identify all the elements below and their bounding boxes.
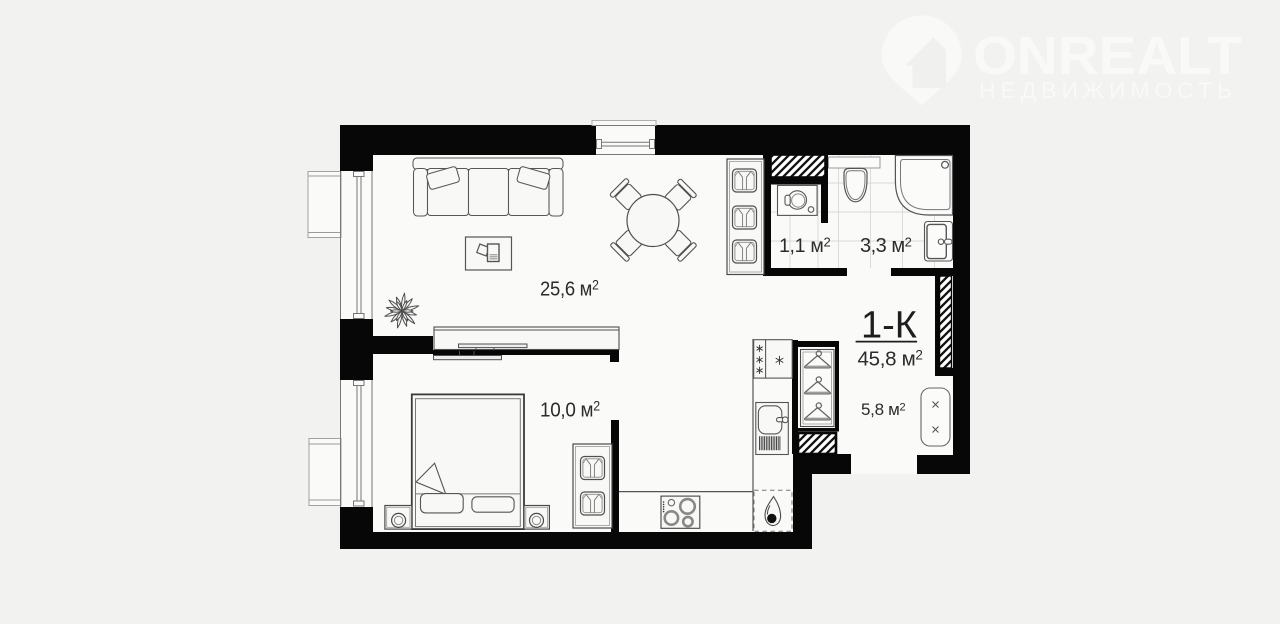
svg-text:3,3 м2: 3,3 м2: [860, 235, 912, 258]
svg-text:НЕДВИЖИМОСТЬ: НЕДВИЖИМОСТЬ: [979, 78, 1237, 103]
svg-text:ONREALT: ONREALT: [973, 26, 1242, 86]
svg-text:45,8 м2: 45,8 м2: [858, 348, 923, 371]
svg-text:1,1 м2: 1,1 м2: [779, 235, 830, 258]
svg-text:10,0 м2: 10,0 м2: [540, 398, 600, 422]
svg-text:25,6 м2: 25,6 м2: [540, 277, 599, 301]
svg-text:1-К: 1-К: [861, 305, 917, 347]
svg-text:5,8 м2: 5,8 м2: [861, 400, 906, 419]
